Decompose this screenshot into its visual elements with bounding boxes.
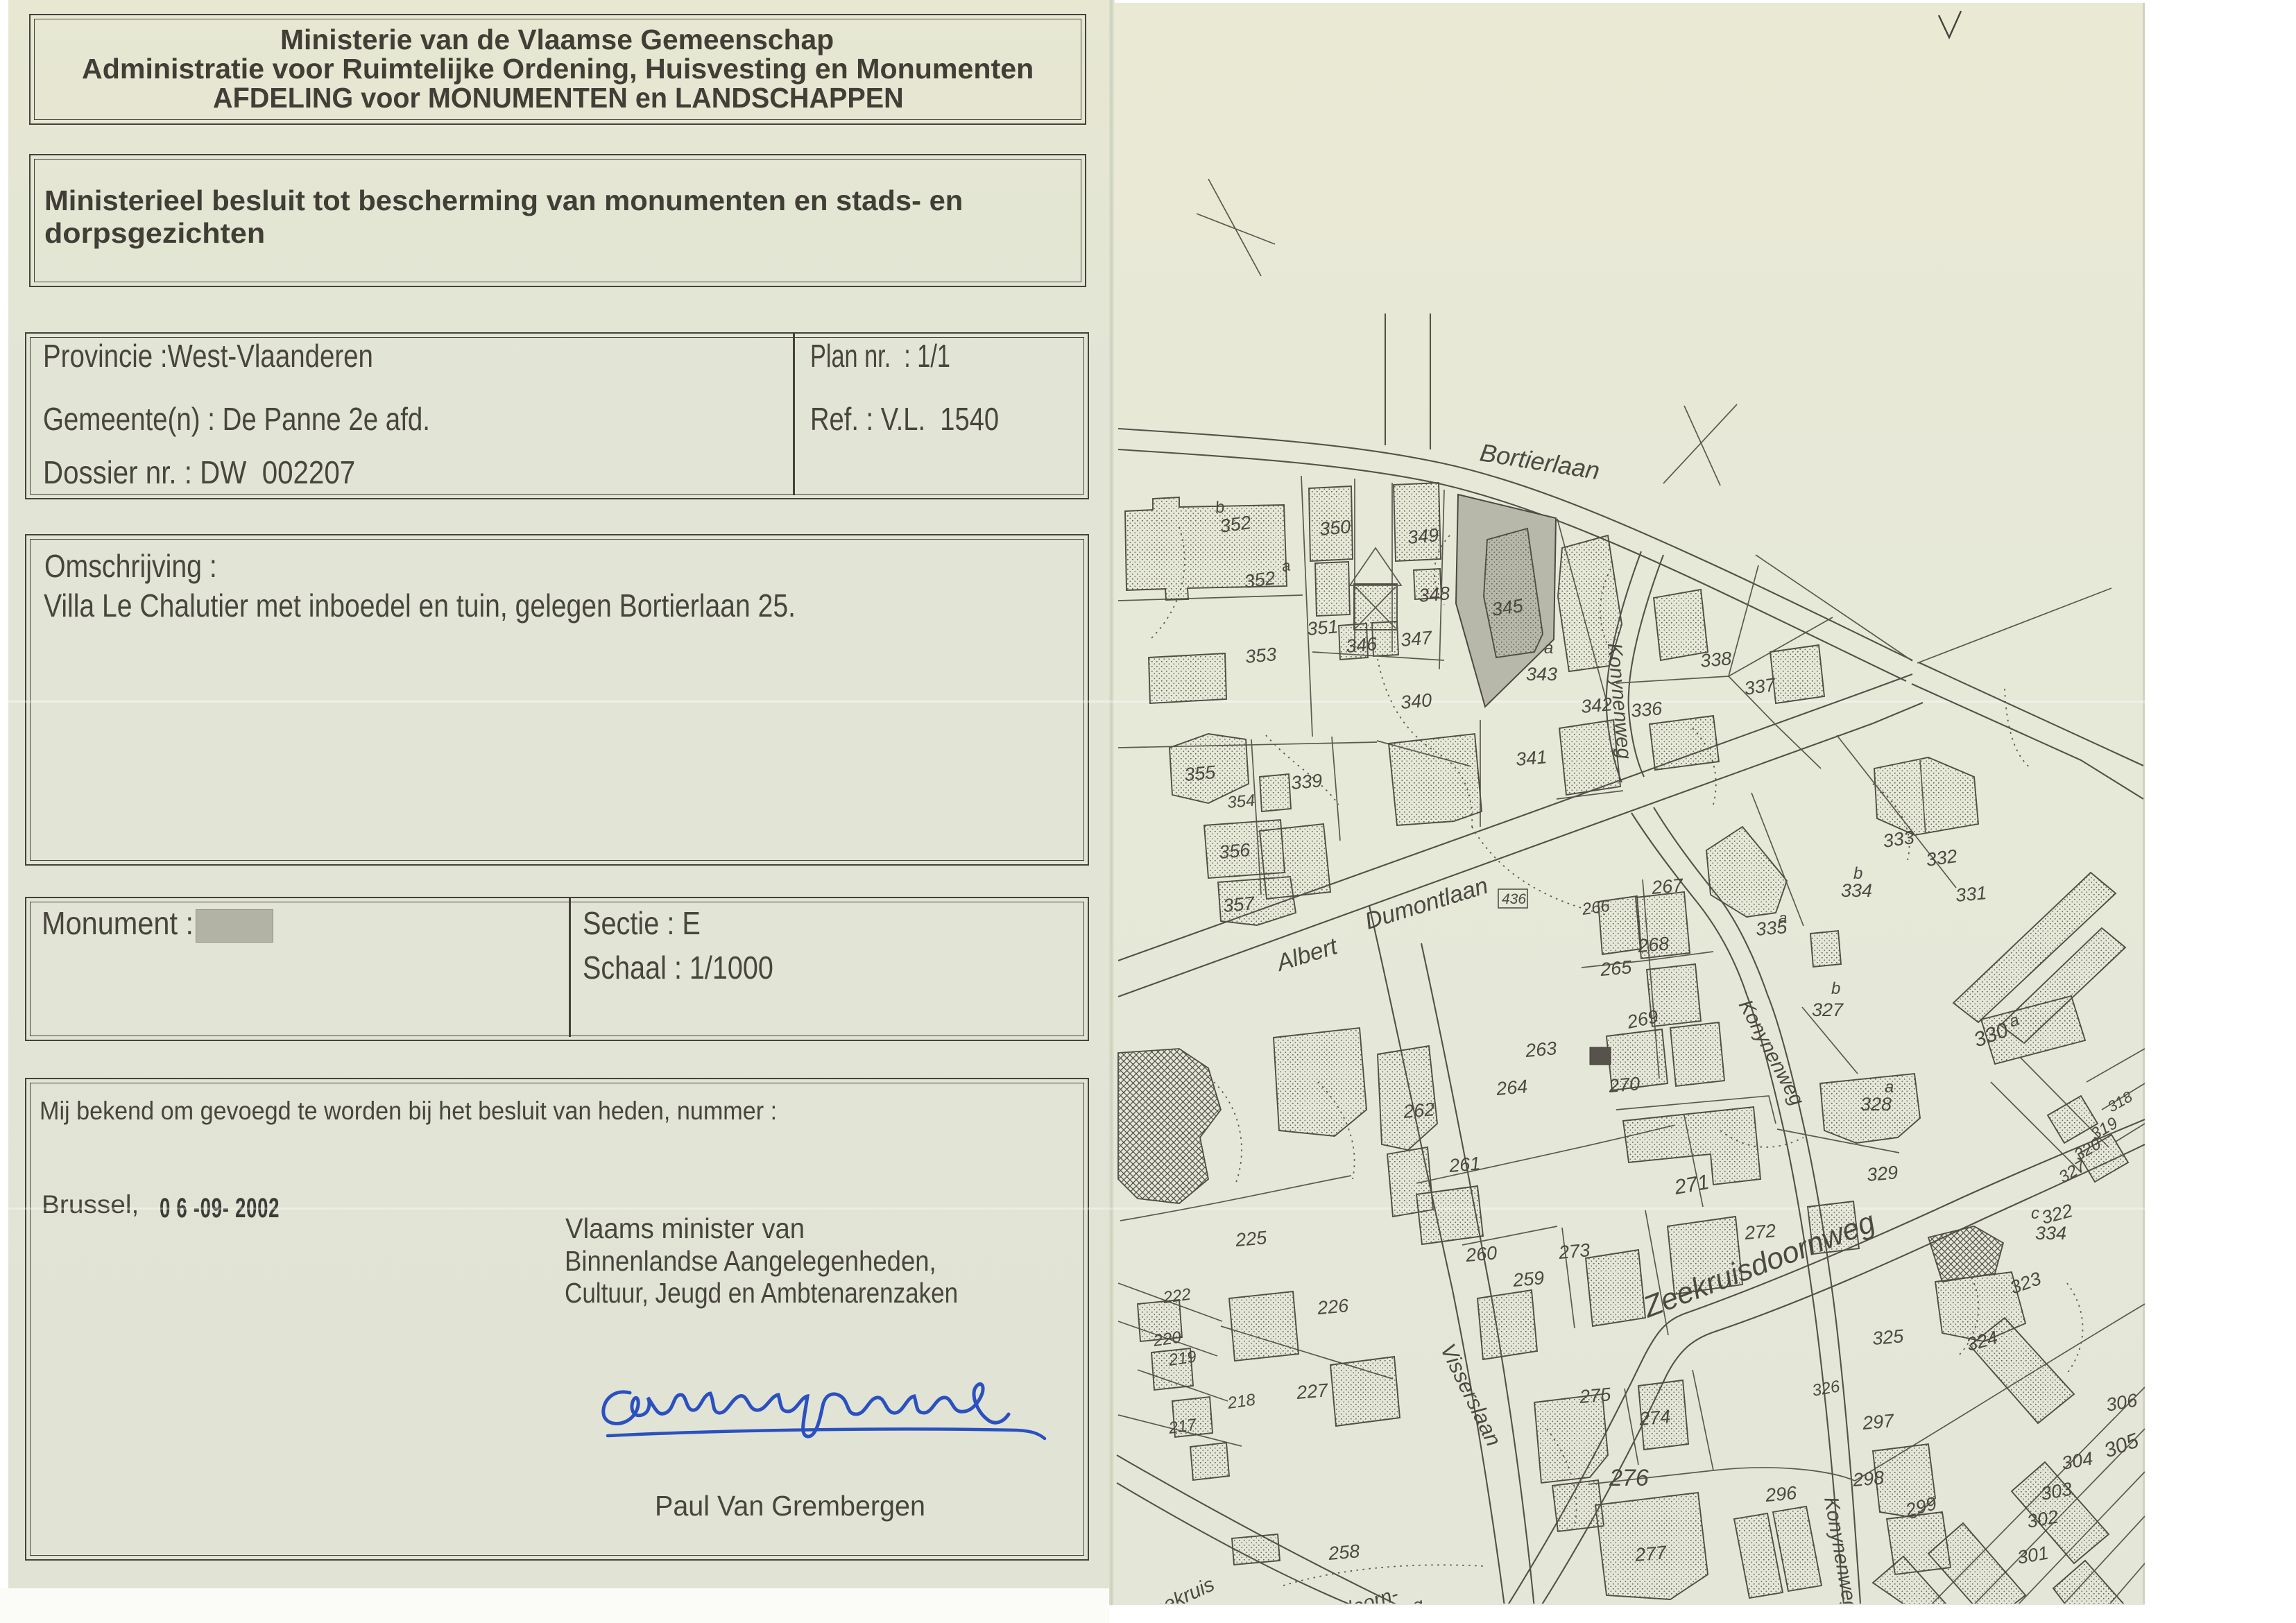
svg-text:357: 357 bbox=[1222, 893, 1256, 916]
svg-text:355: 355 bbox=[1183, 762, 1217, 785]
svg-text:297: 297 bbox=[1861, 1410, 1895, 1434]
svg-text:356: 356 bbox=[1218, 839, 1251, 863]
svg-text:336: 336 bbox=[1630, 698, 1663, 721]
svg-text:354: 354 bbox=[1226, 791, 1256, 812]
svg-text:261: 261 bbox=[1448, 1153, 1482, 1176]
svg-text:225: 225 bbox=[1234, 1227, 1268, 1251]
svg-text:347: 347 bbox=[1400, 627, 1433, 651]
svg-text:Zeekruis: Zeekruis bbox=[1138, 1573, 1218, 1604]
svg-text:304: 304 bbox=[2060, 1448, 2095, 1474]
svg-text:348: 348 bbox=[1418, 583, 1451, 606]
svg-text:338: 338 bbox=[1699, 648, 1733, 671]
svg-text:322: 322 bbox=[2039, 1200, 2075, 1228]
svg-text:341: 341 bbox=[1515, 746, 1548, 770]
svg-text:325: 325 bbox=[1871, 1325, 1905, 1349]
svg-text:263: 263 bbox=[1524, 1038, 1558, 1061]
svg-text:340: 340 bbox=[1400, 689, 1433, 713]
svg-text:219: 219 bbox=[1167, 1348, 1197, 1370]
svg-text:331: 331 bbox=[1955, 882, 1988, 906]
svg-text:264: 264 bbox=[1495, 1076, 1529, 1099]
svg-text:259: 259 bbox=[1511, 1267, 1545, 1291]
svg-text:Albert: Albert bbox=[1272, 933, 1341, 977]
svg-text:265: 265 bbox=[1599, 956, 1633, 980]
svg-text:273: 273 bbox=[1557, 1239, 1591, 1263]
svg-text:337: 337 bbox=[1743, 674, 1778, 699]
svg-text:220: 220 bbox=[1151, 1328, 1183, 1351]
svg-text:326: 326 bbox=[1810, 1377, 1842, 1400]
svg-text:266: 266 bbox=[1580, 897, 1611, 920]
svg-text:a: a bbox=[1544, 639, 1553, 658]
svg-text:doorn-: doorn- bbox=[1339, 1583, 1401, 1604]
svg-text:Konynenweg: Konynenweg bbox=[1819, 1495, 1862, 1604]
svg-text:332: 332 bbox=[1925, 845, 1959, 870]
svg-text:Konynenweg: Konynenweg bbox=[1734, 996, 1808, 1109]
svg-text:306: 306 bbox=[2105, 1389, 2140, 1416]
svg-text:436: 436 bbox=[1502, 891, 1526, 907]
svg-text:334: 334 bbox=[1841, 880, 1872, 901]
svg-text:275: 275 bbox=[1578, 1384, 1612, 1407]
svg-text:328: 328 bbox=[1860, 1094, 1892, 1115]
svg-text:271: 271 bbox=[1672, 1171, 1711, 1199]
svg-text:343: 343 bbox=[1526, 664, 1557, 685]
svg-text:296: 296 bbox=[1764, 1482, 1798, 1506]
svg-text:339: 339 bbox=[1290, 770, 1323, 793]
svg-text:352: 352 bbox=[1243, 567, 1277, 592]
svg-text:268: 268 bbox=[1636, 933, 1670, 956]
svg-text:a: a bbox=[1280, 556, 1292, 574]
svg-text:277: 277 bbox=[1634, 1542, 1668, 1565]
svg-text:353: 353 bbox=[1244, 644, 1278, 667]
svg-text:335: 335 bbox=[1755, 916, 1788, 940]
svg-text:226: 226 bbox=[1316, 1295, 1350, 1319]
svg-text:351: 351 bbox=[1306, 616, 1339, 639]
svg-text:345: 345 bbox=[1491, 595, 1525, 620]
svg-text:b: b bbox=[1831, 979, 1840, 998]
svg-text:274: 274 bbox=[1638, 1406, 1672, 1429]
svg-text:301: 301 bbox=[2016, 1543, 2050, 1568]
svg-text:323: 323 bbox=[2007, 1268, 2044, 1298]
svg-text:222: 222 bbox=[1161, 1285, 1192, 1307]
svg-text:258: 258 bbox=[1327, 1540, 1361, 1564]
svg-text:333: 333 bbox=[1882, 827, 1916, 852]
svg-text:227: 227 bbox=[1295, 1380, 1329, 1403]
svg-text:327: 327 bbox=[1812, 999, 1844, 1020]
svg-text:267: 267 bbox=[1650, 875, 1684, 898]
svg-text:349: 349 bbox=[1407, 524, 1440, 548]
svg-text:298: 298 bbox=[1851, 1467, 1885, 1491]
svg-text:350: 350 bbox=[1319, 516, 1352, 540]
svg-text:272: 272 bbox=[1743, 1220, 1777, 1244]
svg-text:270: 270 bbox=[1607, 1073, 1641, 1097]
svg-text:b: b bbox=[1214, 497, 1226, 517]
svg-text:218: 218 bbox=[1226, 1391, 1257, 1414]
svg-text:305: 305 bbox=[2101, 1429, 2142, 1462]
svg-text:260: 260 bbox=[1464, 1242, 1498, 1266]
svg-text:346: 346 bbox=[1345, 633, 1378, 657]
svg-text:352: 352 bbox=[1219, 512, 1253, 537]
svg-text:Dumontlaan: Dumontlaan bbox=[1362, 873, 1491, 935]
svg-text:262: 262 bbox=[1402, 1099, 1436, 1122]
svg-text:276: 276 bbox=[1609, 1465, 1649, 1491]
svg-text:c: c bbox=[2031, 1204, 2039, 1223]
svg-text:329: 329 bbox=[1866, 1162, 1899, 1185]
